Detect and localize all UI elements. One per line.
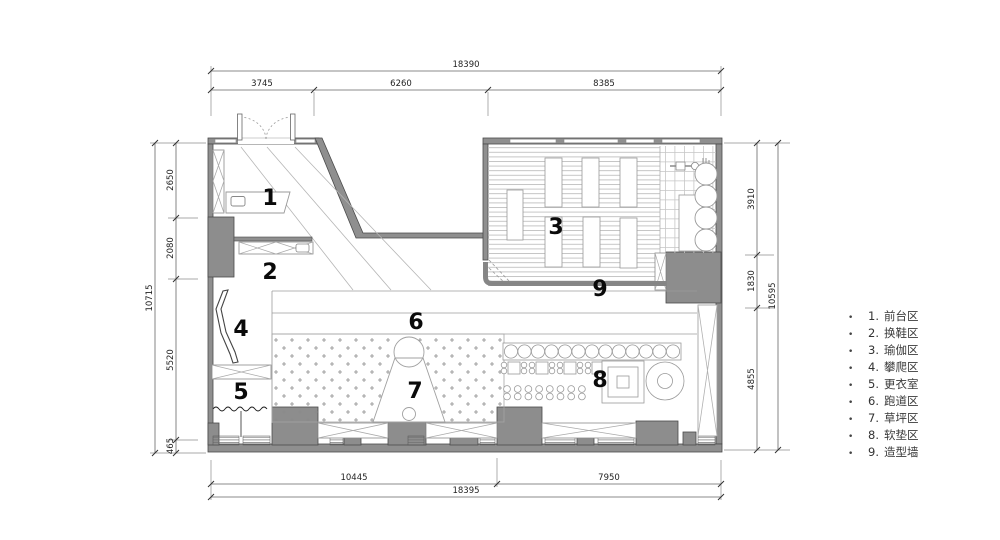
dim-left-seg3: 5520 <box>166 349 176 371</box>
dim-right-total: 10595 <box>768 282 778 309</box>
legend-label: 前台区 <box>884 309 919 324</box>
dim-left-total: 10715 <box>145 284 155 311</box>
dim-top-seg2: 6260 <box>390 79 412 89</box>
legend-label: 攀爬区 <box>884 360 919 375</box>
legend-label: 瑜伽区 <box>884 343 919 358</box>
legend-label: 造型墙 <box>884 445 919 460</box>
legend-label: 草坪区 <box>884 411 919 426</box>
legend-label: 软垫区 <box>884 428 919 443</box>
legend-item-5: •5.更衣室 <box>848 377 919 394</box>
legend-item-4: •4.攀爬区 <box>848 360 919 377</box>
area-label-3: 3 <box>548 215 563 240</box>
dim-top-seg1: 3745 <box>251 79 273 89</box>
dim-left-seg1: 2650 <box>166 169 176 191</box>
bullet-icon: • <box>848 362 862 377</box>
bullet-icon: • <box>848 396 862 411</box>
wall-cabinet <box>213 150 224 213</box>
bullet-icon: • <box>848 379 862 394</box>
legend-label: 换鞋区 <box>884 326 919 341</box>
bullet-icon: • <box>848 328 862 343</box>
dim-right-seg3: 4855 <box>747 368 757 390</box>
bullet-icon: • <box>848 345 862 360</box>
bullet-icon: • <box>848 311 862 326</box>
legend-item-1: •1.前台区 <box>848 309 919 326</box>
dim-left-seg4: 465 <box>166 438 176 454</box>
legend-label: 更衣室 <box>884 377 919 392</box>
dim-bottom-seg1: 10445 <box>340 473 367 483</box>
area-label-9: 9 <box>592 277 607 302</box>
area-label-7: 7 <box>407 379 422 404</box>
legend-item-6: •6.跑道区 <box>848 394 919 411</box>
dim-top-total: 18390 <box>452 60 479 70</box>
bullet-icon: • <box>848 447 862 462</box>
entrance-double-door <box>238 114 296 144</box>
area-label-4: 4 <box>233 317 248 342</box>
lawn-area <box>272 334 504 422</box>
area-label-1: 1 <box>262 186 277 211</box>
dim-top-seg3: 8385 <box>593 79 615 89</box>
floor-plan-page: 1 2 3 4 5 6 7 8 9 <box>0 0 1000 540</box>
dim-right-seg1: 3910 <box>747 188 757 210</box>
legend-item-8: •8.软垫区 <box>848 428 919 445</box>
bullet-icon: • <box>848 430 862 445</box>
dim-right-seg2: 1830 <box>747 270 757 292</box>
dim-bottom-seg2: 7950 <box>598 473 620 483</box>
reception-desk <box>226 192 290 213</box>
legend-item-3: •3.瑜伽区 <box>848 343 919 360</box>
dim-left-seg2: 2080 <box>166 237 176 259</box>
area-label-2: 2 <box>262 260 277 285</box>
legend-item-2: •2.换鞋区 <box>848 326 919 343</box>
legend-item-9: •9.造型墙 <box>848 445 919 462</box>
shoe-bench <box>234 237 313 254</box>
legend-item-7: •7.草坪区 <box>848 411 919 428</box>
bullet-icon: • <box>848 413 862 428</box>
legend-label: 跑道区 <box>884 394 919 409</box>
area-label-5: 5 <box>233 380 248 405</box>
window-benches <box>318 423 636 438</box>
area-label-8: 8 <box>592 368 607 393</box>
legend: •1.前台区 •2.换鞋区 •3.瑜伽区 •4.攀爬区 •5.更衣室 •6.跑道… <box>848 309 919 462</box>
area-label-6: 6 <box>408 310 423 335</box>
dim-bottom-total: 18395 <box>452 486 479 496</box>
